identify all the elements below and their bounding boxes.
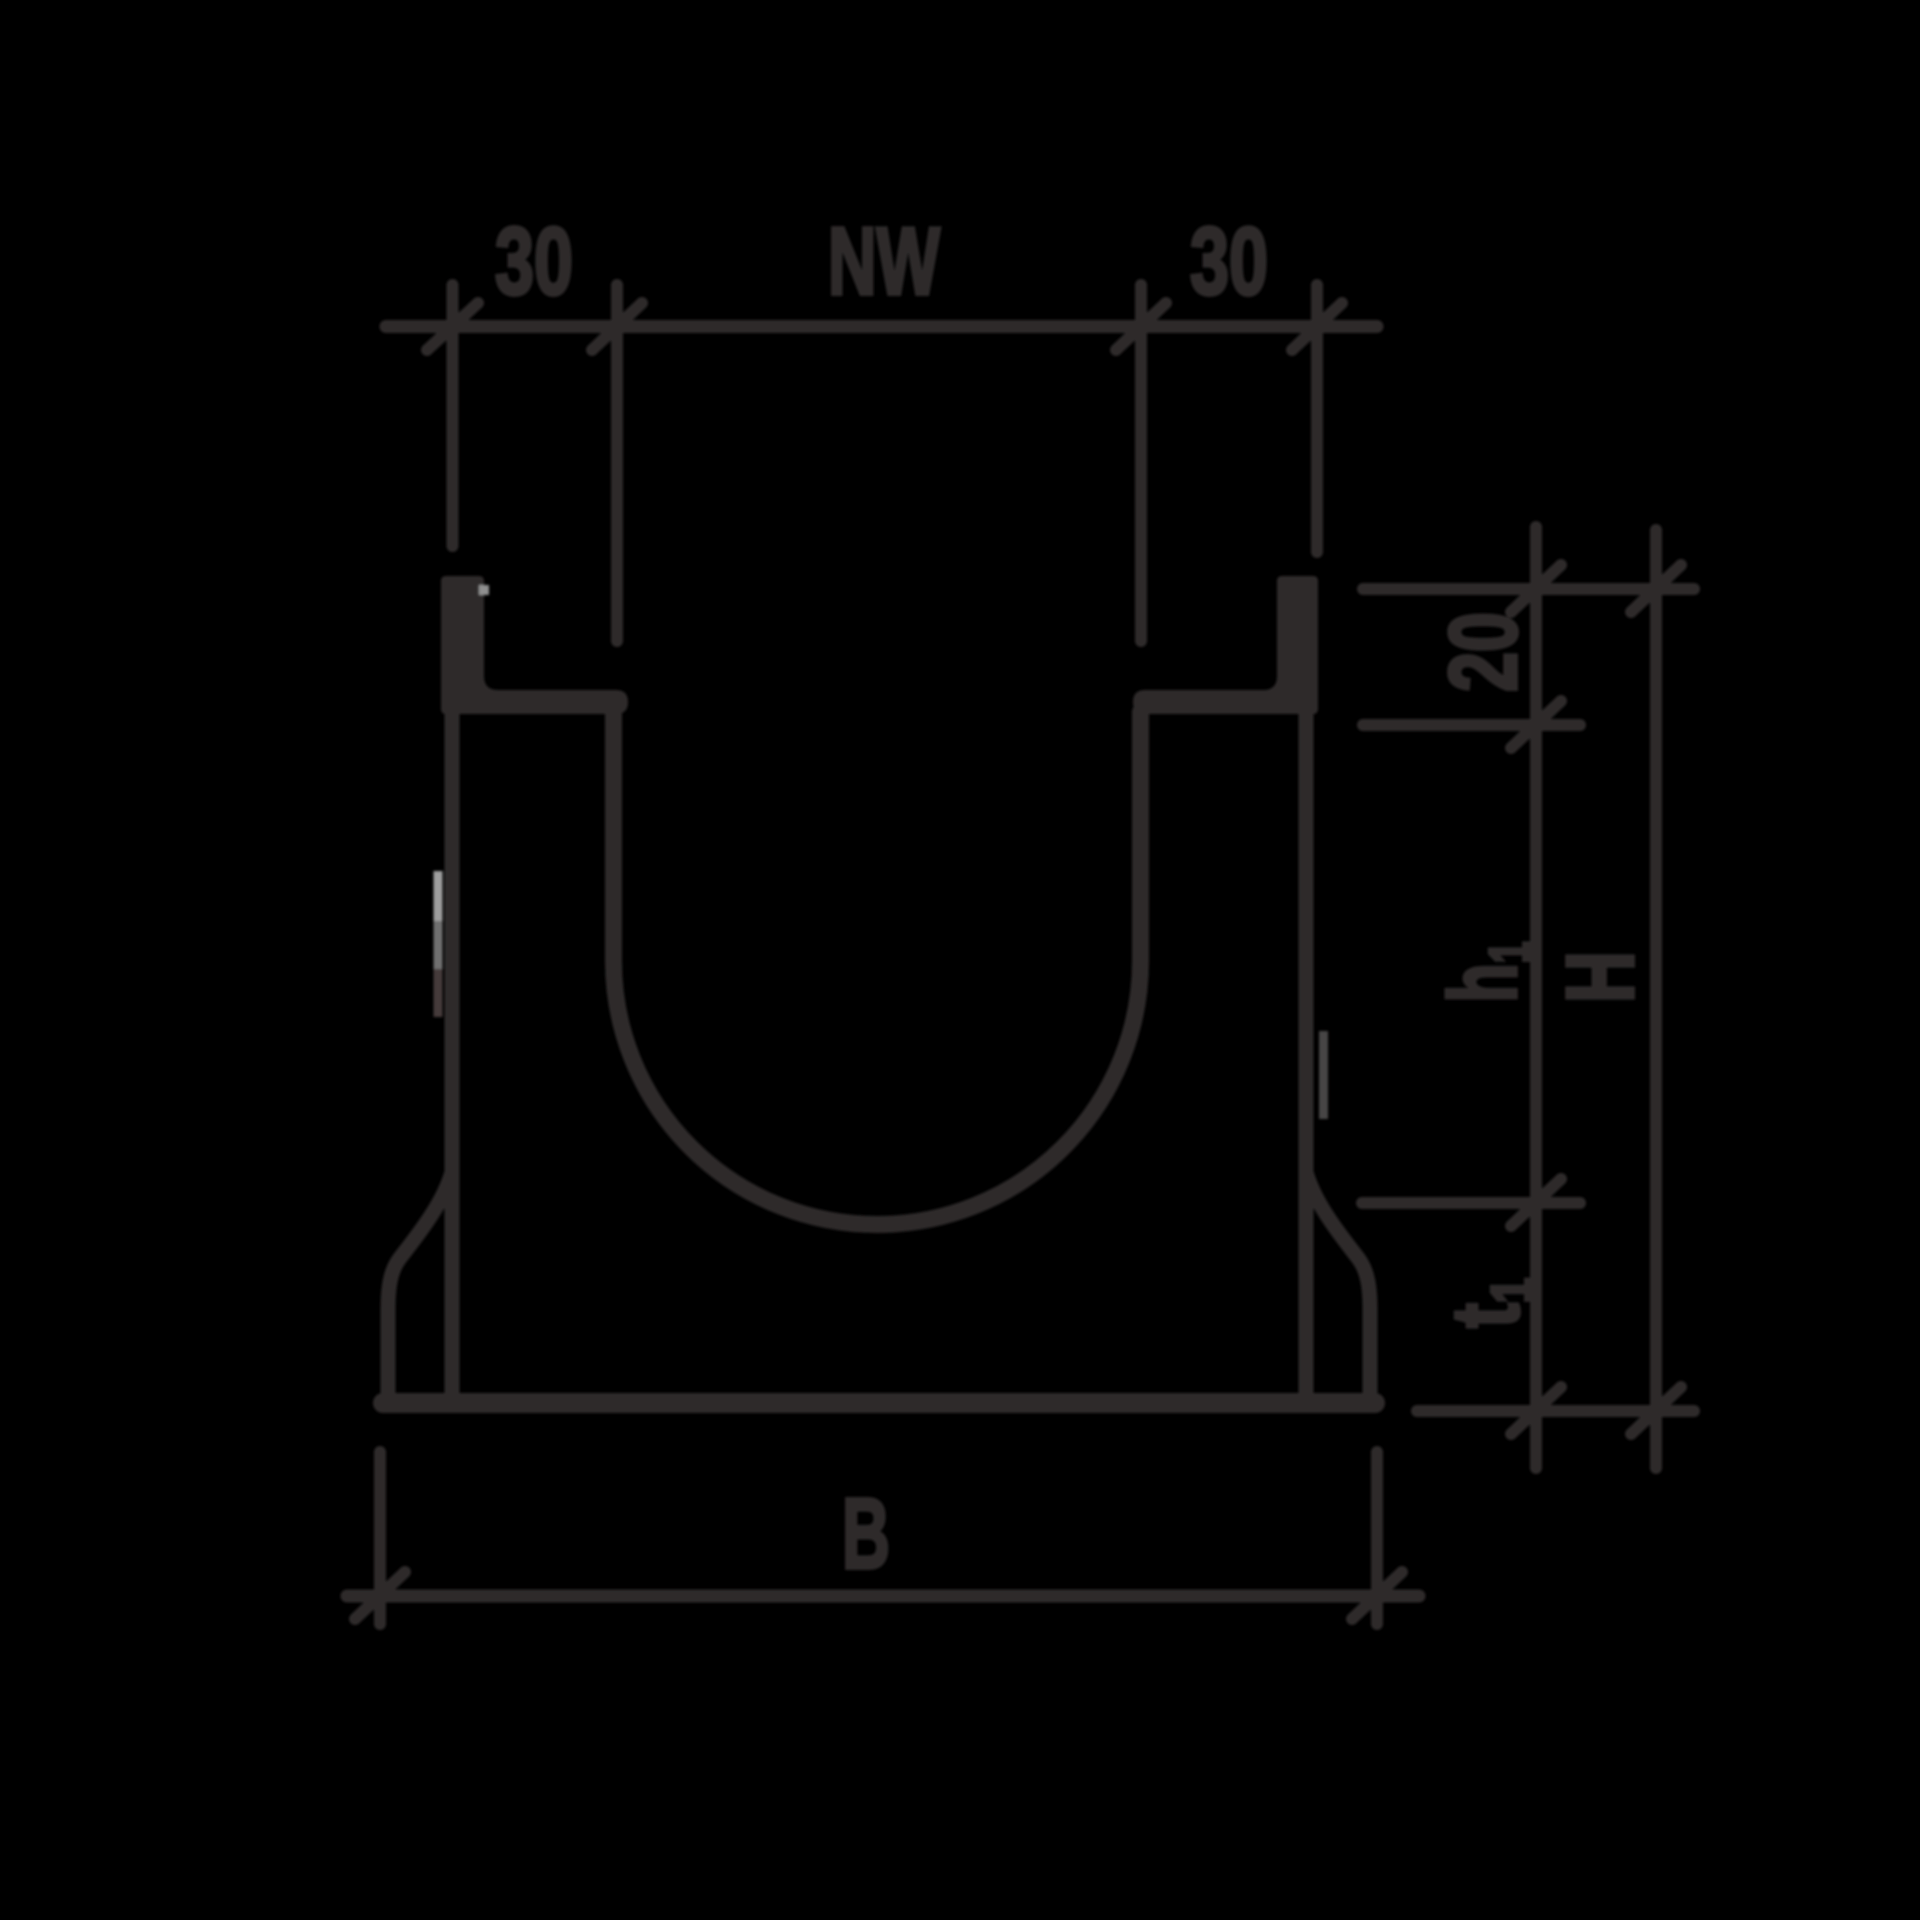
svg-text:h1: h1 [1430, 942, 1543, 1003]
svg-text:30: 30 [495, 208, 573, 315]
svg-text:H: H [1547, 951, 1654, 1003]
svg-text:t1: t1 [1432, 1278, 1545, 1328]
svg-text:B: B [842, 1478, 890, 1590]
svg-text:30: 30 [1190, 208, 1268, 315]
svg-text:NW: NW [828, 208, 940, 315]
svg-text:20: 20 [1430, 612, 1537, 692]
